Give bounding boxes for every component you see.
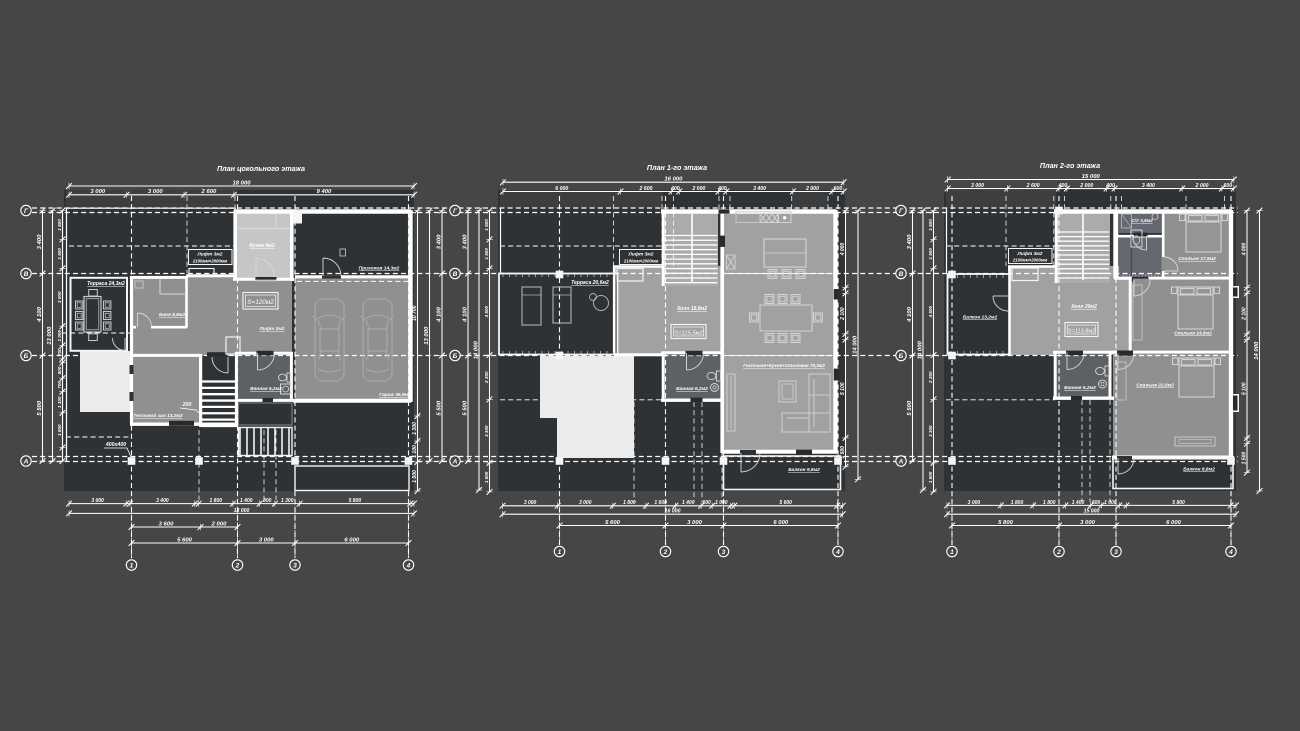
svg-text:1 400: 1 400 xyxy=(240,498,253,504)
svg-text:2 600: 2 600 xyxy=(201,189,217,195)
svg-text:200: 200 xyxy=(182,402,192,408)
svg-text:14 000: 14 000 xyxy=(852,335,858,354)
svg-text:13 000: 13 000 xyxy=(47,326,53,345)
svg-text:2100мм×2000мм: 2100мм×2000мм xyxy=(192,259,228,264)
svg-text:3 400: 3 400 xyxy=(462,234,468,249)
svg-text:14 000: 14 000 xyxy=(1254,341,1260,360)
svg-text:Балкон 13,2м2: Балкон 13,2м2 xyxy=(963,315,998,321)
svg-text:3 000: 3 000 xyxy=(579,500,592,506)
svg-text:4 000: 4 000 xyxy=(840,243,846,257)
svg-text:13 000: 13 000 xyxy=(424,326,430,345)
svg-text:1 000: 1 000 xyxy=(1104,500,1117,506)
svg-text:С/У 3,8м2: С/У 3,8м2 xyxy=(1131,218,1153,223)
svg-text:Лифт 2м2: Лифт 2м2 xyxy=(259,325,285,332)
svg-text:5 800: 5 800 xyxy=(1172,500,1185,506)
svg-text:14 000: 14 000 xyxy=(917,341,923,360)
svg-text:5 500: 5 500 xyxy=(907,400,913,415)
svg-text:2: 2 xyxy=(663,549,668,556)
svg-text:2100мм×2000мм: 2100мм×2000мм xyxy=(1012,258,1048,263)
svg-text:3 400: 3 400 xyxy=(156,498,169,504)
svg-text:3 000: 3 000 xyxy=(259,537,274,543)
svg-text:3 300: 3 300 xyxy=(484,425,489,437)
svg-text:Ванная 6,2м2: Ванная 6,2м2 xyxy=(250,386,282,392)
svg-text:3 400: 3 400 xyxy=(37,234,43,249)
svg-text:4: 4 xyxy=(406,562,411,569)
svg-text:1: 1 xyxy=(950,549,954,556)
svg-text:2 000: 2 000 xyxy=(1079,183,1093,189)
svg-text:Б: Б xyxy=(899,353,904,360)
svg-text:2: 2 xyxy=(235,562,240,569)
svg-text:400х400: 400х400 xyxy=(105,442,126,448)
svg-text:400: 400 xyxy=(1058,183,1068,189)
svg-text:1 800: 1 800 xyxy=(210,498,223,504)
svg-text:В: В xyxy=(899,271,904,278)
svg-text:3 400: 3 400 xyxy=(753,186,766,192)
svg-text:600: 600 xyxy=(1224,183,1233,189)
svg-text:3 000: 3 000 xyxy=(968,500,981,506)
svg-text:План цокольного этажа: План цокольного этажа xyxy=(217,164,305,173)
svg-text:1 500: 1 500 xyxy=(484,248,489,260)
svg-text:1 000: 1 000 xyxy=(715,500,728,506)
svg-text:2 000: 2 000 xyxy=(691,186,705,192)
svg-text:14 000: 14 000 xyxy=(473,341,479,360)
svg-text:600: 600 xyxy=(702,500,711,506)
svg-text:5 600: 5 600 xyxy=(177,537,192,543)
svg-text:Лифт 3м2: Лифт 3м2 xyxy=(1017,250,1043,257)
svg-text:2100мм×2000мм: 2100мм×2000мм xyxy=(623,259,659,264)
svg-text:В: В xyxy=(24,271,29,278)
svg-text:Ванная 6,2м2: Ванная 6,2м2 xyxy=(676,386,708,392)
svg-text:В: В xyxy=(453,271,458,278)
svg-text:3 400: 3 400 xyxy=(907,234,913,249)
svg-text:3 400: 3 400 xyxy=(1142,183,1155,189)
svg-text:Прихожая 14,3м2: Прихожая 14,3м2 xyxy=(359,266,400,272)
svg-text:3: 3 xyxy=(1114,549,1118,556)
svg-text:400: 400 xyxy=(717,186,727,192)
svg-text:Спальня 17,8м2: Спальня 17,8м2 xyxy=(1178,256,1216,262)
svg-text:16 000: 16 000 xyxy=(664,177,683,183)
svg-text:1 000: 1 000 xyxy=(57,330,62,342)
svg-text:400: 400 xyxy=(1105,183,1115,189)
svg-text:5 100: 5 100 xyxy=(1241,382,1247,395)
svg-text:3: 3 xyxy=(722,549,726,556)
svg-text:5 500: 5 500 xyxy=(462,400,468,415)
svg-text:3 000: 3 000 xyxy=(524,500,537,506)
svg-text:800: 800 xyxy=(57,366,62,374)
svg-text:3 000: 3 000 xyxy=(148,189,163,195)
svg-text:1 500: 1 500 xyxy=(484,219,489,231)
svg-text:5 500: 5 500 xyxy=(37,400,43,415)
svg-text:Холл 20м2: Холл 20м2 xyxy=(1070,304,1097,310)
svg-text:S=115,5м2: S=115,5м2 xyxy=(674,331,703,337)
svg-text:3 000: 3 000 xyxy=(57,291,62,303)
svg-text:1 800: 1 800 xyxy=(1043,500,1056,506)
svg-text:4 100: 4 100 xyxy=(436,306,442,322)
svg-text:1 500: 1 500 xyxy=(928,471,933,483)
svg-text:15 000: 15 000 xyxy=(1082,174,1101,180)
svg-text:9 400: 9 400 xyxy=(317,189,332,195)
svg-text:600: 600 xyxy=(1092,500,1101,506)
svg-text:План 2-го этажа: План 2-го этажа xyxy=(1040,161,1100,170)
svg-text:4 500: 4 500 xyxy=(928,305,933,318)
svg-text:700: 700 xyxy=(57,381,62,389)
svg-text:1 100: 1 100 xyxy=(57,396,62,408)
svg-text:5 600: 5 600 xyxy=(779,500,792,506)
svg-text:400: 400 xyxy=(670,186,680,192)
svg-text:2 600: 2 600 xyxy=(1026,183,1040,189)
svg-text:Холл 18,8м2: Холл 18,8м2 xyxy=(676,306,707,312)
svg-text:5 600: 5 600 xyxy=(605,520,620,526)
svg-text:3 400: 3 400 xyxy=(436,234,442,249)
svg-text:1 500: 1 500 xyxy=(928,219,933,231)
svg-text:600: 600 xyxy=(834,186,843,192)
svg-text:1 800: 1 800 xyxy=(1011,500,1024,506)
svg-text:2 300: 2 300 xyxy=(484,371,489,384)
svg-text:Баня 8,8м2: Баня 8,8м2 xyxy=(159,312,185,318)
svg-text:Спальня 14,8м2: Спальня 14,8м2 xyxy=(1174,331,1212,337)
svg-text:2 100: 2 100 xyxy=(840,307,846,321)
svg-text:2 000: 2 000 xyxy=(805,186,819,192)
svg-text:Лифт 3м2: Лифт 3м2 xyxy=(197,251,223,258)
svg-text:3 600: 3 600 xyxy=(159,521,174,527)
svg-text:800: 800 xyxy=(263,498,272,504)
svg-text:1 500: 1 500 xyxy=(57,219,62,231)
svg-text:4 100: 4 100 xyxy=(907,306,913,322)
svg-text:4 500: 4 500 xyxy=(484,305,489,318)
svg-text:Лифт 3м2: Лифт 3м2 xyxy=(628,251,654,258)
svg-text:6 000: 6 000 xyxy=(344,537,359,543)
svg-text:1: 1 xyxy=(130,562,134,569)
svg-text:А: А xyxy=(452,458,458,465)
svg-text:1 300: 1 300 xyxy=(281,498,294,504)
svg-text:6 000: 6 000 xyxy=(773,520,788,526)
svg-text:3 000: 3 000 xyxy=(687,520,702,526)
svg-text:15 000: 15 000 xyxy=(1084,509,1100,515)
svg-text:2 000: 2 000 xyxy=(1195,183,1209,189)
svg-text:1 500: 1 500 xyxy=(57,248,62,260)
svg-text:Терраса 24,3м2: Терраса 24,3м2 xyxy=(87,281,125,287)
svg-text:700: 700 xyxy=(57,348,62,356)
svg-text:Спальня 22,8м2: Спальня 22,8м2 xyxy=(1136,383,1174,389)
svg-text:2 100: 2 100 xyxy=(1241,307,1247,321)
svg-text:16 000: 16 000 xyxy=(665,509,681,515)
svg-text:1 800: 1 800 xyxy=(57,424,62,436)
svg-text:5 800: 5 800 xyxy=(998,520,1013,526)
svg-text:1 500: 1 500 xyxy=(484,471,489,483)
svg-text:1 500: 1 500 xyxy=(840,446,846,459)
svg-text:Балкон 8,8м2: Балкон 8,8м2 xyxy=(1183,467,1215,473)
svg-text:S=120м2: S=120м2 xyxy=(247,299,274,306)
svg-text:1 500: 1 500 xyxy=(928,248,933,260)
svg-text:Кухня 9м2: Кухня 9м2 xyxy=(249,243,274,249)
svg-text:2: 2 xyxy=(1056,549,1061,556)
svg-text:18 000: 18 000 xyxy=(234,508,250,514)
svg-text:Тепловой зал 13,2м2: Тепловой зал 13,2м2 xyxy=(133,412,183,419)
svg-text:3 000: 3 000 xyxy=(90,189,105,195)
svg-text:А: А xyxy=(898,458,904,465)
svg-text:Терраса 20,6м2: Терраса 20,6м2 xyxy=(571,280,609,286)
svg-text:4 000: 4 000 xyxy=(1241,243,1247,257)
svg-text:А: А xyxy=(23,458,29,465)
svg-text:6 000: 6 000 xyxy=(1166,520,1181,526)
svg-text:3 000: 3 000 xyxy=(91,498,104,504)
svg-text:1 400: 1 400 xyxy=(1072,500,1085,506)
svg-text:3: 3 xyxy=(293,562,297,569)
svg-text:1 100: 1 100 xyxy=(412,445,418,458)
svg-text:18 000: 18 000 xyxy=(232,180,251,186)
svg-text:Б: Б xyxy=(453,353,458,360)
svg-text:6 000: 6 000 xyxy=(555,186,568,192)
svg-text:4 100: 4 100 xyxy=(462,306,468,322)
svg-text:4: 4 xyxy=(1228,549,1233,556)
svg-text:5 500: 5 500 xyxy=(436,400,442,415)
svg-text:5 100: 5 100 xyxy=(840,382,846,395)
svg-text:3 000: 3 000 xyxy=(971,183,984,189)
svg-text:2 300: 2 300 xyxy=(928,371,933,384)
svg-text:Балкон 9,8м2: Балкон 9,8м2 xyxy=(788,467,820,473)
svg-text:План 1-го этажа: План 1-го этажа xyxy=(647,163,707,172)
svg-text:S=113,8м2: S=113,8м2 xyxy=(1068,329,1096,335)
svg-text:Б: Б xyxy=(24,353,29,360)
svg-text:1 800: 1 800 xyxy=(623,500,636,506)
svg-text:2 000: 2 000 xyxy=(211,521,227,527)
svg-text:1 500: 1 500 xyxy=(412,470,418,483)
svg-text:5 800: 5 800 xyxy=(349,498,362,504)
svg-text:Гараж 36,9м2: Гараж 36,9м2 xyxy=(379,392,411,398)
svg-text:2 600: 2 600 xyxy=(638,186,652,192)
svg-text:3 000: 3 000 xyxy=(1080,520,1095,526)
svg-text:1: 1 xyxy=(558,549,562,556)
svg-text:1 400: 1 400 xyxy=(682,500,695,506)
svg-text:Ванная 6,2м2: Ванная 6,2м2 xyxy=(1064,385,1096,391)
svg-text:4 100: 4 100 xyxy=(37,306,43,322)
svg-text:Гостиная+Кухня+Столовая 79,3м2: Гостиная+Кухня+Столовая 79,3м2 xyxy=(743,363,825,368)
svg-text:1 500: 1 500 xyxy=(1241,452,1247,465)
svg-text:3 300: 3 300 xyxy=(928,425,933,437)
svg-text:10 700: 10 700 xyxy=(412,305,418,321)
svg-text:1 300: 1 300 xyxy=(412,422,418,435)
svg-text:4: 4 xyxy=(835,549,840,556)
